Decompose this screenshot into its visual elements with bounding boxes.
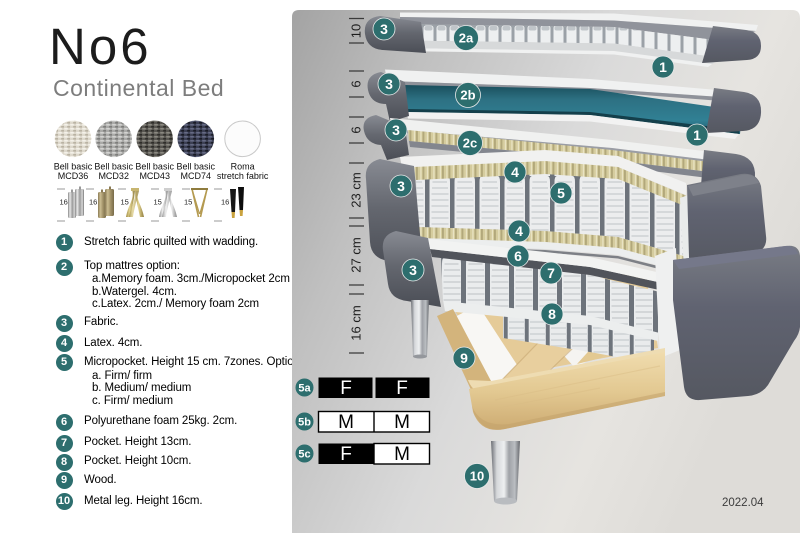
- svg-text:M: M: [338, 412, 354, 433]
- svg-text:M: M: [394, 444, 410, 465]
- svg-text:M: M: [394, 412, 410, 433]
- svg-text:8: 8: [548, 306, 556, 322]
- svg-text:10: 10: [348, 24, 363, 38]
- svg-text:2022.04: 2022.04: [722, 497, 764, 509]
- svg-text:7: 7: [547, 265, 555, 281]
- svg-text:F: F: [396, 378, 408, 399]
- svg-text:6: 6: [514, 248, 522, 264]
- svg-text:5: 5: [557, 185, 565, 201]
- svg-text:23 cm: 23 cm: [348, 172, 363, 207]
- svg-text:5a: 5a: [298, 383, 311, 395]
- svg-text:6: 6: [348, 80, 363, 87]
- svg-text:1: 1: [659, 59, 667, 75]
- svg-text:2a: 2a: [459, 31, 474, 46]
- svg-text:27 cm: 27 cm: [348, 237, 363, 272]
- svg-text:2b: 2b: [460, 88, 475, 103]
- svg-text:1: 1: [693, 127, 701, 143]
- svg-text:4: 4: [511, 164, 519, 180]
- svg-text:3: 3: [380, 21, 388, 37]
- svg-text:F: F: [340, 444, 352, 465]
- svg-text:9: 9: [460, 350, 468, 366]
- svg-text:3: 3: [392, 122, 400, 138]
- svg-text:6: 6: [348, 126, 363, 133]
- svg-text:16 cm: 16 cm: [348, 305, 363, 340]
- svg-text:5b: 5b: [298, 417, 311, 429]
- svg-text:3: 3: [385, 76, 393, 92]
- svg-text:4: 4: [515, 223, 523, 239]
- svg-text:3: 3: [409, 262, 417, 278]
- svg-text:F: F: [340, 378, 352, 399]
- svg-text:3: 3: [397, 178, 405, 194]
- svg-text:2c: 2c: [463, 136, 477, 151]
- svg-text:10: 10: [470, 469, 484, 484]
- svg-text:5c: 5c: [298, 449, 310, 461]
